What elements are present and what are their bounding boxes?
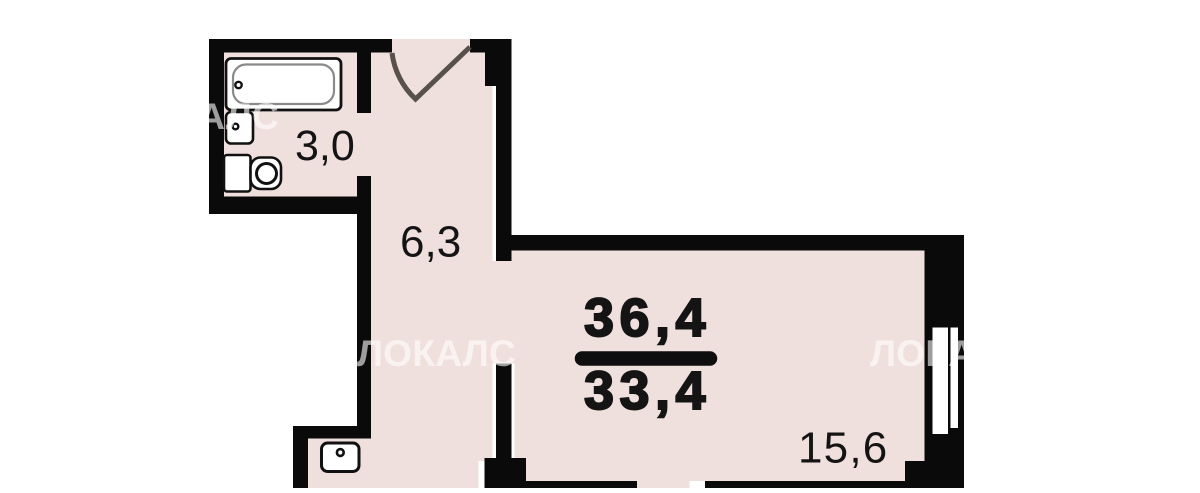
svg-text:ЛОКАЛС: ЛОКАЛС	[870, 333, 1029, 374]
svg-text:36,4: 36,4	[584, 288, 711, 348]
svg-text:ЛОКАЛС: ЛОКАЛС	[120, 96, 279, 137]
svg-text:3,0: 3,0	[295, 122, 355, 170]
svg-text:15,6: 15,6	[798, 424, 888, 473]
svg-text:33,4: 33,4	[584, 361, 711, 421]
svg-text:6,3: 6,3	[400, 218, 461, 267]
svg-text:ЛОКАЛС: ЛОКАЛС	[357, 333, 516, 374]
